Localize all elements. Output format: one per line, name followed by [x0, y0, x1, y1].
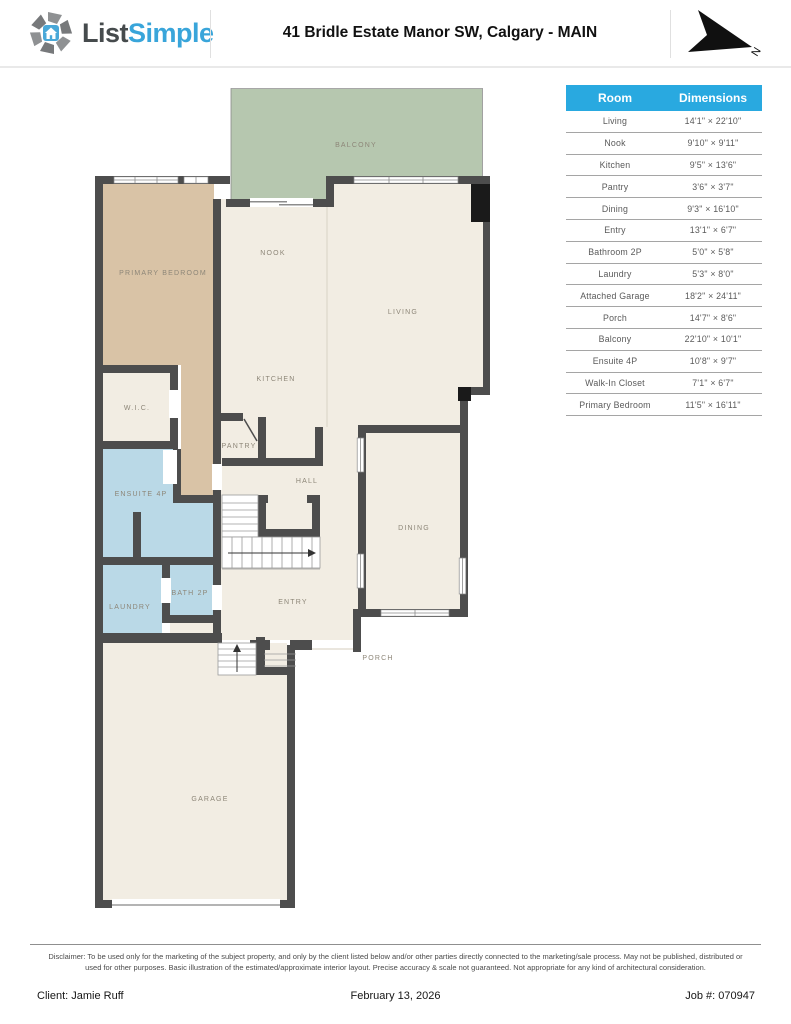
table-row: Entry13'1" × 6'7"	[566, 220, 762, 242]
room-name-cell: Balcony	[566, 334, 664, 344]
table-row: Walk-In Closet7'1" × 6'7"	[566, 373, 762, 395]
job-number: Job #: 070947	[685, 990, 755, 1002]
ensuite-area-east	[173, 503, 213, 557]
room-dimensions-cell: 13'1" × 6'7"	[664, 225, 762, 235]
nook-label: NOOK	[260, 250, 285, 257]
room-dimensions-cell: 10'8" × 9'7"	[664, 356, 762, 366]
room-name-cell: Bathroom 2P	[566, 247, 664, 257]
room-name-cell: Living	[566, 116, 664, 126]
staircase-garage	[218, 643, 256, 675]
room-dimensions-cell: 5'0" × 5'8"	[664, 247, 762, 257]
table-row: Attached Garage18'2" × 24'11"	[566, 285, 762, 307]
table-row: Porch14'7" × 8'6"	[566, 307, 762, 329]
garage-area	[103, 643, 287, 900]
room-dimensions-cell: 18'2" × 24'11"	[664, 291, 762, 301]
wic-door-opening	[169, 390, 179, 418]
room-name-cell: Kitchen	[566, 160, 664, 170]
room-dimensions-cell: 5'3" × 8'0"	[664, 269, 762, 279]
table-row: Balcony22'10" × 10'1"	[566, 329, 762, 351]
staircase-main-flight	[222, 537, 320, 569]
room-name-cell: Walk-In Closet	[566, 378, 664, 388]
document-date: February 13, 2026	[0, 990, 791, 1002]
table-row: Nook9'10" × 9'11"	[566, 133, 762, 155]
dimensions-table-rows: Living14'1" × 22'10"Nook9'10" × 9'11"Kit…	[566, 111, 762, 416]
primary-bedroom-label: PRIMARY BEDROOM	[119, 270, 207, 277]
room-dimensions-cell: 9'10" × 9'11"	[664, 138, 762, 148]
table-row: Kitchen9'5" × 13'6"	[566, 155, 762, 177]
room-name-cell: Entry	[566, 225, 664, 235]
sliding-door	[250, 198, 313, 207]
disclaimer-text: Disclaimer: To be used only for the mark…	[46, 952, 745, 973]
room-dimensions-cell: 9'3" × 16'10"	[664, 204, 762, 214]
kitchen-label: KITCHEN	[256, 376, 295, 383]
staircase-upper-flight	[222, 495, 258, 537]
room-name-cell: Ensuite 4P	[566, 356, 664, 366]
laundry-door-opening	[161, 578, 171, 603]
room-dimensions-cell: 14'7" × 8'6"	[664, 313, 762, 323]
room-dimensions-cell: 14'1" × 22'10"	[664, 116, 762, 126]
column-header-room: Room	[566, 91, 664, 105]
room-dimensions-cell: 3'6" × 3'7"	[664, 182, 762, 192]
table-row: Ensuite 4P10'8" × 9'7"	[566, 351, 762, 373]
hall-east-area	[323, 425, 358, 466]
table-row: Laundry5'3" × 8'0"	[566, 264, 762, 286]
footer-info-row: Client: Jamie Ruff February 13, 2026 Job…	[0, 990, 791, 1006]
room-name-cell: Pantry	[566, 182, 664, 192]
footer-divider	[30, 944, 761, 945]
ensuite-door-opening	[163, 450, 177, 484]
pantry-label: PANTRY	[222, 443, 257, 450]
dining-label: DINING	[398, 525, 430, 532]
column-header-dimensions: Dimensions	[664, 91, 762, 105]
laundry-label: LAUNDRY	[109, 604, 151, 611]
room-name-cell: Attached Garage	[566, 291, 664, 301]
room-name-cell: Nook	[566, 138, 664, 148]
dining-area	[366, 433, 460, 609]
living-label: LIVING	[388, 309, 418, 316]
bath-label: BATH 2P	[171, 590, 208, 597]
room-name-cell: Porch	[566, 313, 664, 323]
room-name-cell: Laundry	[566, 269, 664, 279]
bath-door-opening	[212, 585, 222, 610]
hall-label: HALL	[296, 478, 318, 485]
room-dimensions-cell: 7'1" × 6'7"	[664, 378, 762, 388]
living-area	[330, 184, 483, 395]
bedroom-door-opening	[212, 464, 222, 490]
dimensions-table-header: Room Dimensions	[566, 85, 762, 111]
table-row: Primary Bedroom11'5" × 16'11"	[566, 394, 762, 416]
dimensions-table: Room Dimensions Living14'1" × 22'10"Nook…	[566, 85, 762, 416]
table-row: Pantry3'6" × 3'7"	[566, 176, 762, 198]
living-hall-passage	[323, 395, 460, 425]
balcony-label: BALCONY	[335, 142, 377, 149]
porch-label: PORCH	[362, 655, 393, 662]
room-dimensions-cell: 22'10" × 10'1"	[664, 334, 762, 344]
garage-door	[112, 899, 280, 909]
table-row: Living14'1" × 22'10"	[566, 111, 762, 133]
laundry-area	[103, 565, 162, 633]
room-dimensions-cell: 11'5" × 16'11"	[664, 400, 762, 410]
garage-label: GARAGE	[191, 796, 228, 803]
room-name-cell: Dining	[566, 204, 664, 214]
room-name-cell: Primary Bedroom	[566, 400, 664, 410]
table-row: Dining9'3" × 16'10"	[566, 198, 762, 220]
nook-kitchen-area	[221, 199, 334, 466]
entry-label: ENTRY	[278, 599, 308, 606]
floorplan-page: ListSimple 41 Bridle Estate Manor SW, Ca…	[0, 0, 791, 1024]
ensuite-label: ENSUITE 4P	[115, 491, 168, 498]
room-dimensions-cell: 9'5" × 13'6"	[664, 160, 762, 170]
wic-label: W.I.C.	[124, 405, 150, 412]
table-row: Bathroom 2P5'0" × 5'8"	[566, 242, 762, 264]
